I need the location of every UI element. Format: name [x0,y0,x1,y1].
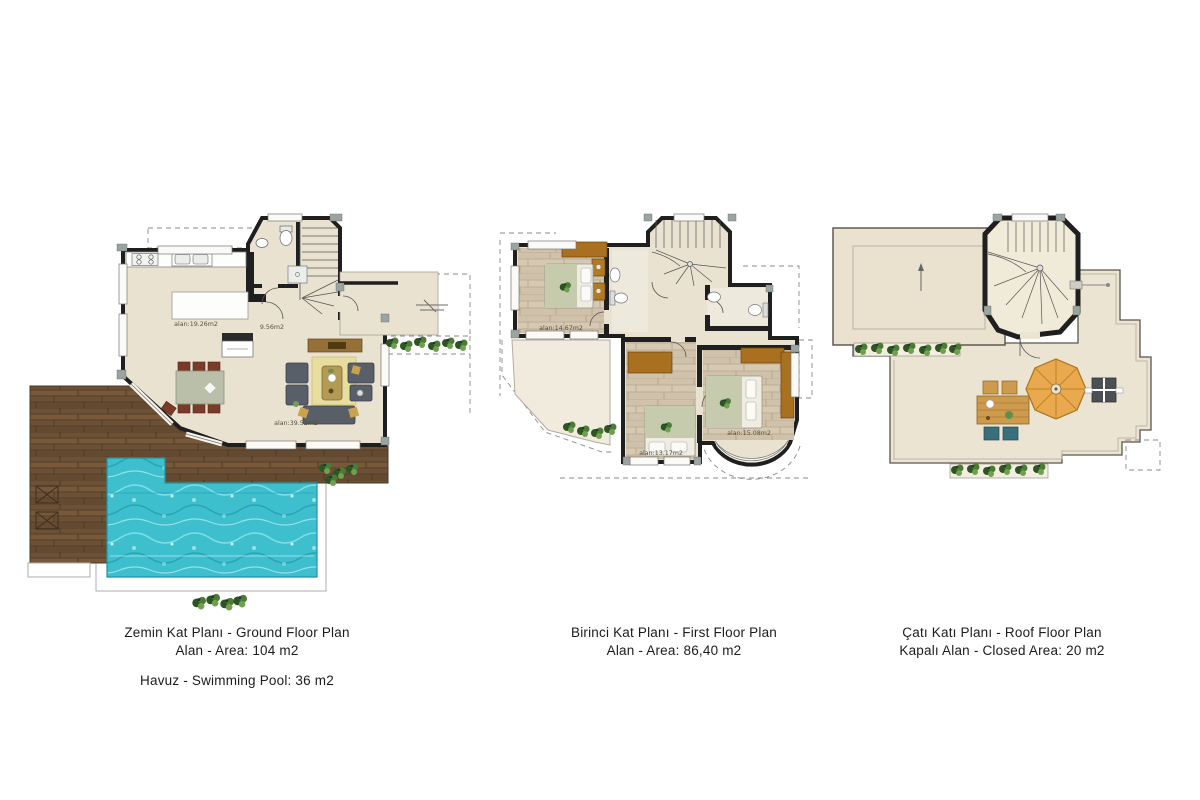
caption-line: Kapalı Alan - Closed Area: 20 m2 [802,642,1200,660]
roof-floor-plan [833,214,1160,478]
first-floor-plan: alan:14.67m2 alan:13.17m2 alan:15.08m2 [500,214,812,479]
roof-overhang-dashes [1126,440,1160,470]
caption-line: Çatı Katı Planı - Roof Floor Plan [802,624,1200,642]
dining-table [176,371,224,404]
floor-plan-drawing: alan:19.26m2 9.56m2 alan:39.52m2 [0,0,1200,620]
area-label-bedroom1: alan:14.67m2 [539,325,583,332]
bed-bedroom3 [706,376,762,428]
shower [288,266,307,283]
area-label-living: alan:39.52m2 [274,420,318,427]
sink [256,239,268,248]
toilet [749,305,762,316]
kitchen-island [172,292,248,319]
sink [708,292,721,302]
area-label-kitchen: alan:19.26m2 [174,321,218,328]
stove [132,254,158,266]
entry-porch [337,272,448,335]
roof-floor-caption: Çatı Katı Planı - Roof Floor Plan Kapalı… [802,624,1200,660]
fireplace [222,333,253,357]
caption-line: Alan - Area: 104 m2 [37,642,437,660]
toilet [280,231,292,246]
bed-bedroom2 [645,406,695,456]
area-label-bedroom3: alan:15.08m2 [727,430,771,437]
ground-floor-plan: alan:19.26m2 9.56m2 alan:39.52m2 [28,214,470,611]
ground-floor-caption: Zemin Kat Planı - Ground Floor Plan Alan… [37,624,437,690]
tower-window [1012,214,1048,221]
area-label-hall: 9.56m2 [260,324,284,331]
area-label-bedroom2: alan:13.17m2 [639,450,683,457]
toilet [615,293,628,303]
bed-bedroom1 [545,264,593,308]
sink [610,268,620,282]
lower-roof [833,228,1005,345]
caption-line: Havuz - Swimming Pool: 36 m2 [37,672,437,690]
floor-plan-sheet: alan:19.26m2 9.56m2 alan:39.52m2 [0,0,1200,800]
bathroom1-floor [612,250,648,332]
parasol-umbrella [1026,359,1086,419]
balcony-terrace [512,340,617,445]
deck-step [28,563,90,577]
caption-line: Zemin Kat Planı - Ground Floor Plan [37,624,437,642]
